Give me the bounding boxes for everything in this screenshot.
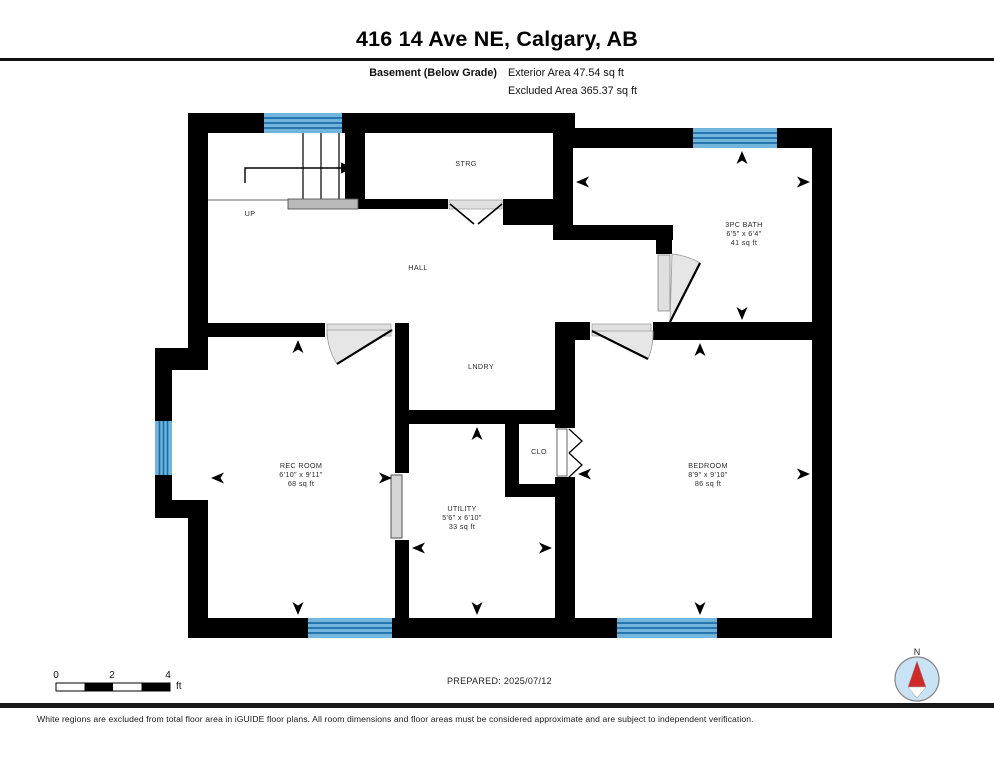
room-name: UTILITY <box>442 504 482 513</box>
outer-walls <box>155 113 832 638</box>
room-area: 86 sq ft <box>688 479 728 488</box>
scale-bar <box>56 683 170 691</box>
excluded-area: Excluded Area 365.37 sq ft <box>508 85 637 97</box>
room-area: 41 sq ft <box>725 238 762 247</box>
compass-icon <box>895 657 939 701</box>
room-area: 68 sq ft <box>279 479 322 488</box>
scale-unit: ft <box>176 681 182 692</box>
room-dims: 6'10" x 9'11" <box>279 470 322 479</box>
room-name: REC ROOM <box>279 461 322 470</box>
room-label-strg: STRG <box>455 159 476 168</box>
door-closet-bifold <box>557 429 582 477</box>
compass-north-label: N <box>914 647 921 657</box>
exterior-area: Exterior Area 47.54 sq ft <box>508 67 624 79</box>
window-rec-room <box>308 618 392 638</box>
window-top-left <box>264 113 342 133</box>
room-label-hall: HALL <box>408 263 427 272</box>
stair-direction-arrow <box>245 163 353 184</box>
window-bath <box>693 128 777 148</box>
room-dims: 8'9" x 9'10" <box>688 470 728 479</box>
disclaimer-text: White regions are excluded from total fl… <box>37 714 754 724</box>
room-label-clo: CLO <box>531 447 547 456</box>
room-dims: 5'6" x 6'10" <box>442 513 482 522</box>
footer-divider <box>0 703 994 708</box>
room-label-utility: UTILITY 5'6" x 6'10" 33 sq ft <box>442 504 482 531</box>
floor-plan-svg <box>0 0 994 768</box>
room-name: BEDROOM <box>688 461 728 470</box>
room-name: 3PC BATH <box>725 220 762 229</box>
floorplan-page: 416 14 Ave NE, Calgary, AB Basement (Bel… <box>0 0 994 768</box>
room-area: 33 sq ft <box>442 522 482 531</box>
room-label-bath: 3PC BATH 6'5" x 6'4" 41 sq ft <box>725 220 762 247</box>
interior-walls <box>208 113 832 618</box>
stair-landing <box>288 199 358 209</box>
stairs <box>208 133 358 209</box>
scale-tick-2: 2 <box>109 670 115 681</box>
stairs-up-label: UP <box>245 209 256 218</box>
header-divider <box>0 58 994 61</box>
scale-tick-0: 0 <box>53 670 59 681</box>
prepared-date: PREPARED: 2025/07/12 <box>447 676 552 686</box>
room-label-rec-room: REC ROOM 6'10" x 9'11" 68 sq ft <box>279 461 322 488</box>
scale-tick-4: 4 <box>165 670 171 681</box>
door-strg <box>449 200 502 224</box>
room-label-bedroom: BEDROOM 8'9" x 9'10" 86 sq ft <box>688 461 728 488</box>
window-bump-out <box>155 421 172 475</box>
door-rec-room <box>327 324 392 364</box>
page-title: 416 14 Ave NE, Calgary, AB <box>0 27 994 52</box>
door-bedroom <box>592 324 653 359</box>
door-utility-sliding <box>391 475 402 538</box>
door-bath <box>658 254 700 322</box>
floor-label: Basement (Below Grade) <box>369 67 497 79</box>
room-label-lndry: LNDRY <box>468 362 494 371</box>
window-bedroom <box>617 618 717 638</box>
room-dims: 6'5" x 6'4" <box>725 229 762 238</box>
